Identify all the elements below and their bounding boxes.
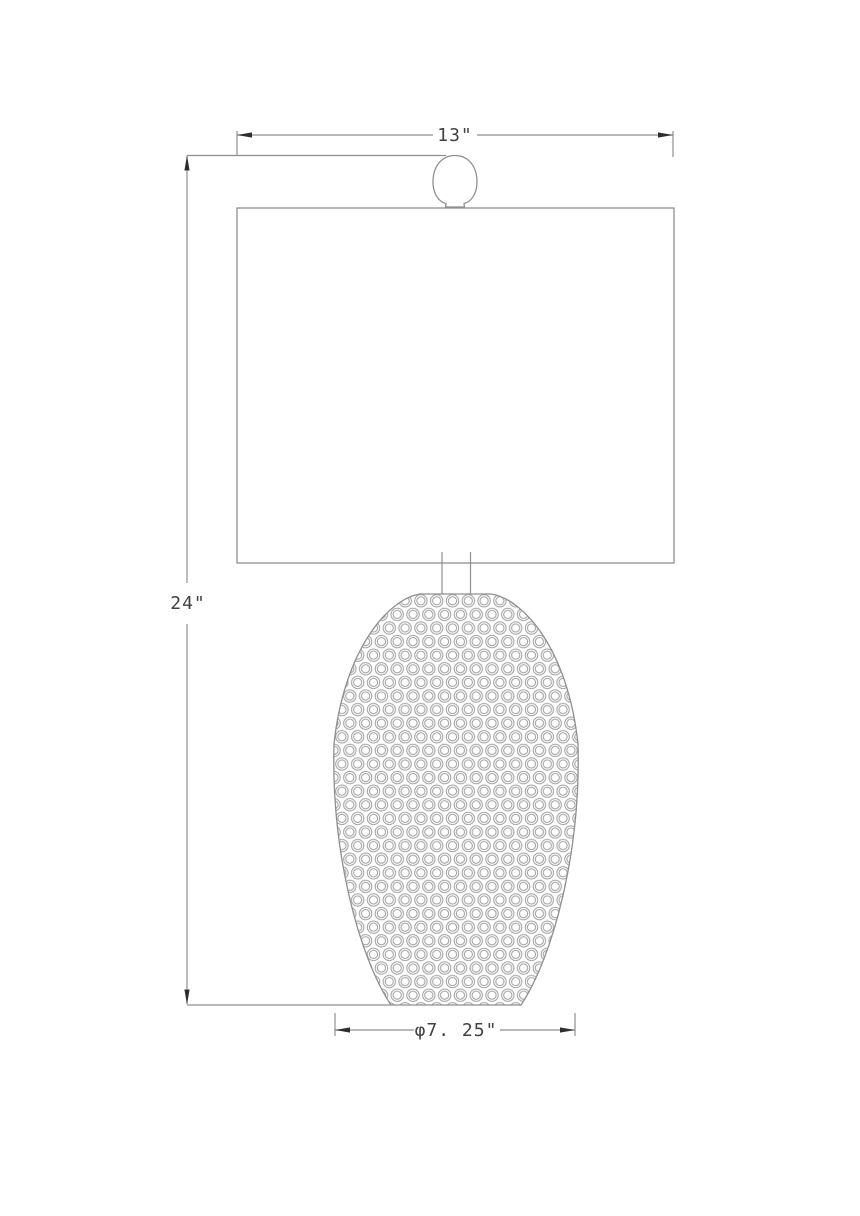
- diameter-dimension: φ7. 25": [335, 1013, 575, 1041]
- width-arrow-right-icon: [658, 132, 673, 137]
- drawing-canvas: 13" 24" φ: [0, 0, 860, 1216]
- finial: [433, 156, 477, 208]
- lamp-shade: [237, 208, 674, 563]
- lamp-technical-drawing: 13" 24" φ: [0, 0, 860, 1216]
- lamp-body: [334, 594, 578, 1005]
- diameter-arrow-left-icon: [335, 1027, 350, 1032]
- diameter-arrow-right-icon: [560, 1027, 575, 1032]
- diameter-dimension-label: φ7. 25": [415, 1020, 498, 1041]
- width-dimension: 13": [237, 125, 673, 157]
- height-dimension-label: 24": [170, 593, 206, 614]
- width-dimension-label: 13": [437, 125, 473, 146]
- height-arrow-bottom-icon: [184, 990, 189, 1005]
- width-arrow-left-icon: [237, 132, 252, 137]
- height-arrow-top-icon: [184, 156, 189, 171]
